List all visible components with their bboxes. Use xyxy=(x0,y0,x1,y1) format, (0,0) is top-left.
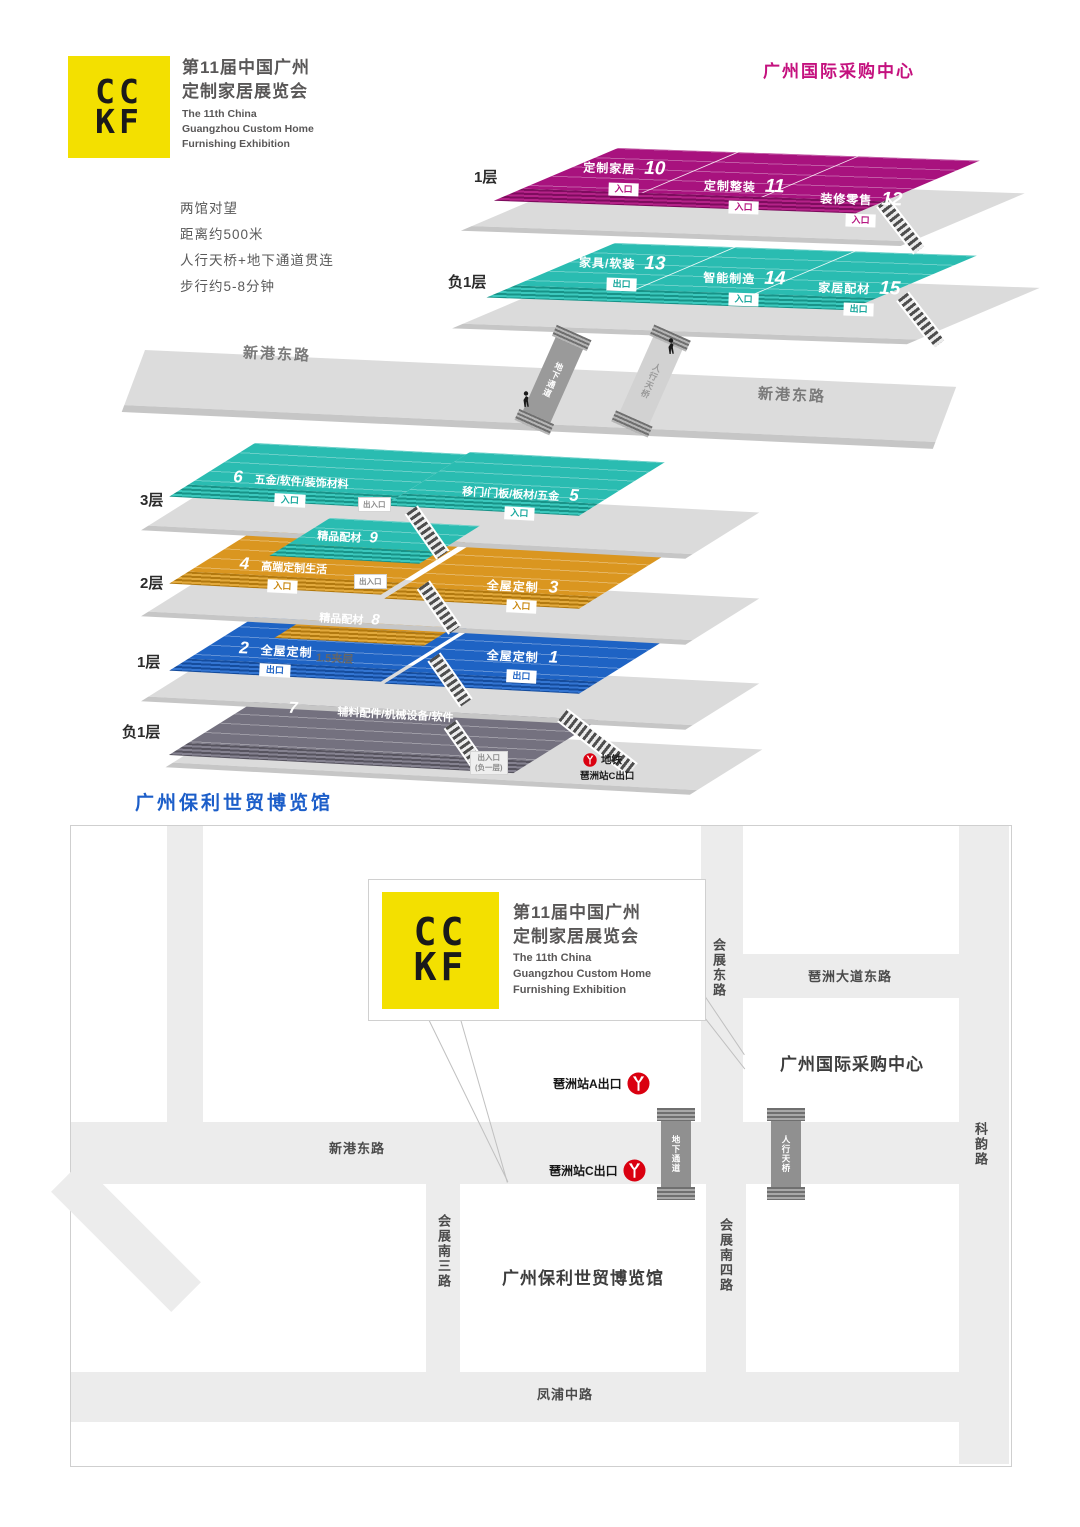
underpass-ramp-label: 地下通道 xyxy=(540,360,566,400)
mezzanine-label: 1.5夹层 xyxy=(316,649,354,667)
hall-11-name: 定制整装 xyxy=(704,177,757,196)
hall-4-number: 4 xyxy=(239,554,250,574)
station-exit-c: 琶洲站C出口 xyxy=(549,1159,646,1182)
hall-15-name: 家居配材 xyxy=(818,279,871,298)
hall-15: 家居配材15 出口 xyxy=(792,275,925,320)
map-logo-card: CC KF 第11届中国广州 定制家居展览会 The 11th China Gu… xyxy=(368,879,706,1021)
title-en-1: The 11th China xyxy=(182,107,314,122)
hall-14-name: 智能制造 xyxy=(703,269,756,288)
map-label-huizhan-south4: 会展南四路 xyxy=(716,1218,735,1293)
hall-2-number: 2 xyxy=(239,638,250,658)
map-footbridge-label: 人行天桥 xyxy=(780,1135,792,1173)
hall-4-entrance-badge: 入口 xyxy=(267,579,298,594)
metro-station-label: 琶洲站C出口 xyxy=(580,768,634,782)
hall-11-number: 11 xyxy=(765,176,785,199)
metro-label: 地铁 xyxy=(601,752,622,767)
hall-15-exit-badge: 出口 xyxy=(843,302,873,316)
pedestrian-icon xyxy=(664,338,678,355)
hall-1-name: 全屋定制 xyxy=(486,646,539,666)
poly-expo-title: 广州保利世贸博览馆 xyxy=(135,788,333,815)
hall-13-exit-badge: 出口 xyxy=(606,277,636,291)
hall-1: 全屋定制1 出口 xyxy=(451,642,593,687)
map-label-fengpu-middle: 凤浦中路 xyxy=(537,1384,593,1403)
hall-5-name: 移门/门板/板材/五金 xyxy=(462,483,560,504)
title-cn-2: 定制家居展览会 xyxy=(513,925,651,949)
title-cn-1: 第11届中国广州 xyxy=(513,901,651,925)
map-poly-expo-block: 广州保利世贸博览馆 xyxy=(460,1264,706,1289)
hall-8-name: 精品配材 xyxy=(319,609,364,627)
info-block: 两馆对望 距离约500米 人行天桥+地下通道贯连 步行约5-8分钟 xyxy=(180,196,334,300)
hall-11: 定制整装11 入口 xyxy=(677,173,810,218)
b1-exit-badge-line2: (负一层) xyxy=(475,763,503,773)
poly-floor1-label: 1层 xyxy=(137,651,160,672)
title-en-3: Furnishing Exhibition xyxy=(513,983,651,999)
map-footbridge-bar: 人行天桥 xyxy=(771,1108,801,1200)
hall-10-entrance-badge: 入口 xyxy=(608,182,638,196)
logo-mark-bottom: KF xyxy=(414,950,468,985)
hall-3-entrance-badge: 入口 xyxy=(506,599,537,614)
road-label-left: 新港东路 xyxy=(243,341,312,365)
hall-2-name: 全屋定制 xyxy=(260,641,313,661)
hall-9-name: 精品配材 xyxy=(317,527,362,545)
hall-5-number: 5 xyxy=(569,486,580,506)
hall-2-exit-badge: 出口 xyxy=(260,663,291,678)
b1-exit-badge-line1: 出入口 xyxy=(475,753,503,763)
logo-mark-bottom: KF xyxy=(95,107,143,137)
hall-15-number: 15 xyxy=(879,278,901,301)
poly-floorb1-label: 负1层 xyxy=(122,721,160,742)
metro-icon xyxy=(623,1159,646,1182)
title-en-3: Furnishing Exhibition xyxy=(182,137,314,152)
hall-12: 装修零售12 入口 xyxy=(794,186,927,231)
hall-8-number: 8 xyxy=(371,611,380,628)
title-cn-1: 第11届中国广州 xyxy=(182,56,314,80)
hall-12-number: 12 xyxy=(881,189,903,212)
map-road-xingang-east xyxy=(71,1122,1009,1184)
hall-1-number: 1 xyxy=(548,647,559,667)
map-label-pazhou-avenue: 琶洲大道东路 xyxy=(808,966,892,985)
hall-10: 定制家居10 入口 xyxy=(557,155,690,200)
cckf-logo: CC KF xyxy=(382,892,499,1009)
title-en-1: The 11th China xyxy=(513,951,651,967)
exhibition-title: 第11届中国广州 定制家居展览会 The 11th China Guangzho… xyxy=(182,56,314,152)
hall-5-entrance-badge: 入口 xyxy=(504,506,535,521)
cckf-logo: CC KF xyxy=(68,56,170,158)
hall-3-name: 全屋定制 xyxy=(486,576,539,596)
map-road-diagonal-sw xyxy=(51,1162,201,1312)
title-en-2: Guangzhou Custom Home xyxy=(513,967,651,983)
map-label-huizhan-south3: 会展南三路 xyxy=(434,1214,453,1289)
station-exit-c-label: 琶洲站C出口 xyxy=(549,1162,618,1179)
map-underpass-label: 地下通道 xyxy=(670,1135,682,1173)
map-label-keyun: 科韵路 xyxy=(971,1122,990,1167)
metro-icon xyxy=(627,1072,650,1095)
pc-floor1-label: 1层 xyxy=(474,166,497,187)
hall-12-name: 装修零售 xyxy=(820,190,873,209)
hall-6-number: 6 xyxy=(233,467,244,487)
hall-14-number: 14 xyxy=(764,268,786,291)
road-label-right: 新港东路 xyxy=(758,382,827,406)
map-label-huizhan-east: 会展东路 xyxy=(709,938,728,998)
hall-13-name: 家具/软装 xyxy=(579,254,636,273)
hall-12-entrance-badge: 入口 xyxy=(845,213,875,227)
map-road-vertical-nw xyxy=(167,826,203,1122)
hall-10-number: 10 xyxy=(644,158,666,181)
purchasing-center-title: 广州国际采购中心 xyxy=(763,57,915,82)
hall-13-number: 13 xyxy=(644,253,666,276)
title-en-2: Guangzhou Custom Home xyxy=(182,122,314,137)
hall-10-name: 定制家居 xyxy=(583,159,636,178)
metro-note: 地铁 xyxy=(583,752,622,767)
info-line-3: 人行天桥+地下通道贯连 xyxy=(180,248,334,274)
hall-13: 家具/软装13 出口 xyxy=(555,250,688,295)
hall-6-entrance-badge: 入口 xyxy=(275,493,306,508)
pc-floorb1-label: 负1层 xyxy=(448,271,486,292)
map-label-xingang-east: 新港东路 xyxy=(329,1138,385,1157)
info-line-2: 距离约500米 xyxy=(180,222,334,248)
metro-icon xyxy=(583,753,597,767)
hall-14: 智能制造14 入口 xyxy=(677,265,810,310)
station-exit-a: 琶洲站A出口 xyxy=(553,1072,650,1095)
hall-1-exit-badge: 出口 xyxy=(506,669,537,684)
hall-11-entrance-badge: 入口 xyxy=(728,200,758,214)
hall-7-number: 7 xyxy=(288,700,298,718)
title-cn-2: 定制家居展览会 xyxy=(182,80,314,104)
hall-4-name: 高端定制生活 xyxy=(261,558,328,577)
location-map: 新港东路 琶洲大道东路 会展东路 科韵路 会展南三路 会展南四路 凤浦中路 广州… xyxy=(70,825,1012,1467)
info-line-4: 步行约5-8分钟 xyxy=(180,274,334,300)
exhibition-title: 第11届中国广州 定制家居展览会 The 11th China Guangzho… xyxy=(513,901,651,999)
map-underpass-bar: 地下通道 xyxy=(661,1108,691,1200)
floor3-access-badge: 出入口 xyxy=(358,497,391,512)
map-purchasing-center-block: 广州国际采购中心 xyxy=(743,1050,961,1075)
station-exit-a-label: 琶洲站A出口 xyxy=(553,1075,622,1092)
poly-floor3-label: 3层 xyxy=(140,489,163,510)
hall-6-name: 五金/软件/装饰材料 xyxy=(254,471,349,492)
hall-9-number: 9 xyxy=(369,529,378,546)
hall-14-entrance-badge: 入口 xyxy=(728,292,758,306)
floor2-access-badge: 出入口 xyxy=(354,574,387,589)
hall-3-number: 3 xyxy=(548,577,559,597)
poly-floor2-label: 2层 xyxy=(140,572,163,593)
exhibition-traffic-map: CC KF 第11届中国广州 定制家居展览会 The 11th China Gu… xyxy=(0,0,1080,1527)
info-line-1: 两馆对望 xyxy=(180,196,334,222)
hall-3: 全屋定制3 入口 xyxy=(451,572,593,617)
b1-exit-badge: 出入口 (负一层) xyxy=(470,751,508,775)
pedestrian-icon xyxy=(519,391,533,408)
footbridge-ramp-label: 人行天桥 xyxy=(638,361,664,401)
